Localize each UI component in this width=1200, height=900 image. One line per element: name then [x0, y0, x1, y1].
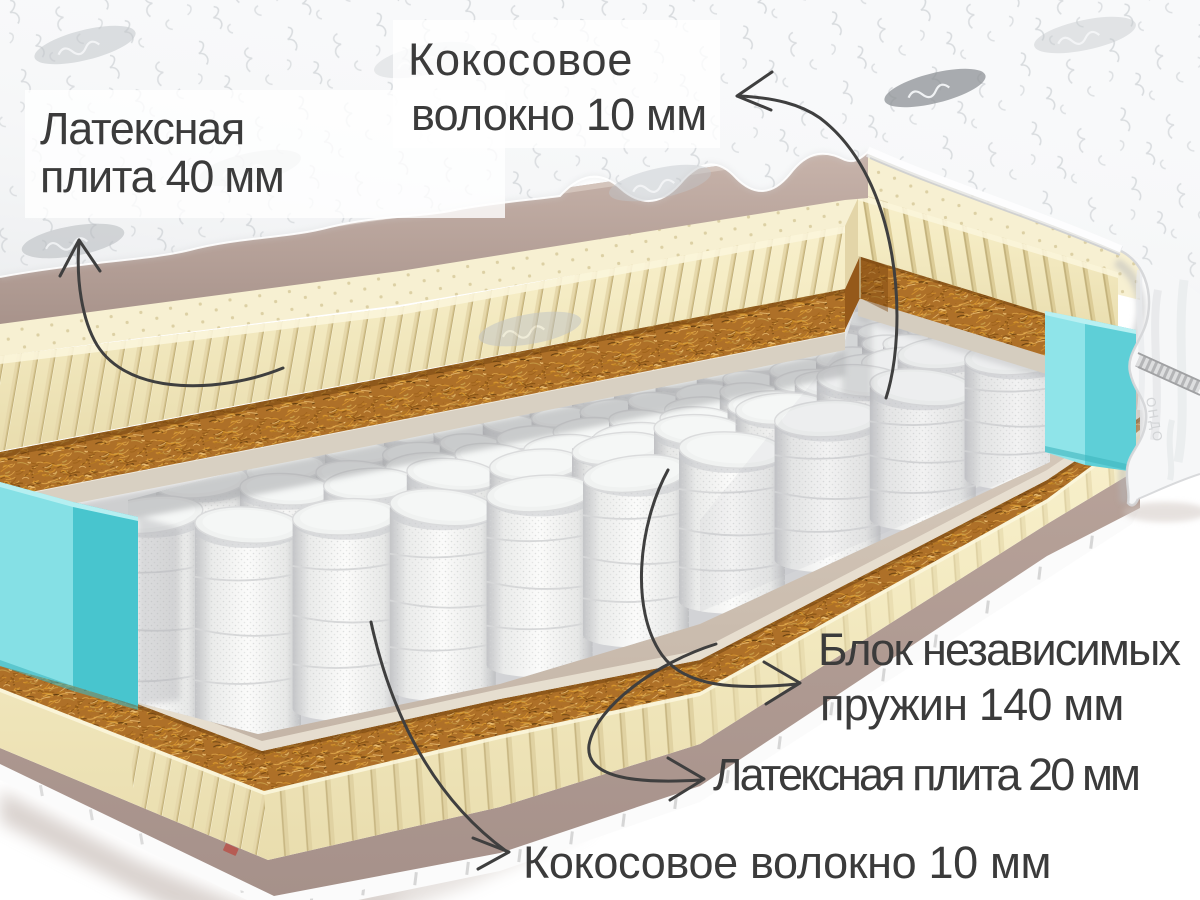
svg-text:Блок независимых: Блок независимых [818, 624, 1182, 675]
svg-text:Кокосовое волокно 10 мм: Кокосовое волокно 10 мм [523, 837, 1051, 888]
svg-text:Латексная плита 20 мм: Латексная плита 20 мм [713, 749, 1138, 800]
svg-text:Латексная: Латексная [40, 103, 244, 154]
svg-text:пружин 140 мм: пружин 140 мм [820, 679, 1124, 730]
svg-text:волокно 10 мм: волокно 10 мм [411, 89, 706, 140]
svg-text:плита 40 мм: плита 40 мм [40, 151, 284, 202]
svg-text:Кокосовое: Кокосовое [408, 34, 633, 85]
